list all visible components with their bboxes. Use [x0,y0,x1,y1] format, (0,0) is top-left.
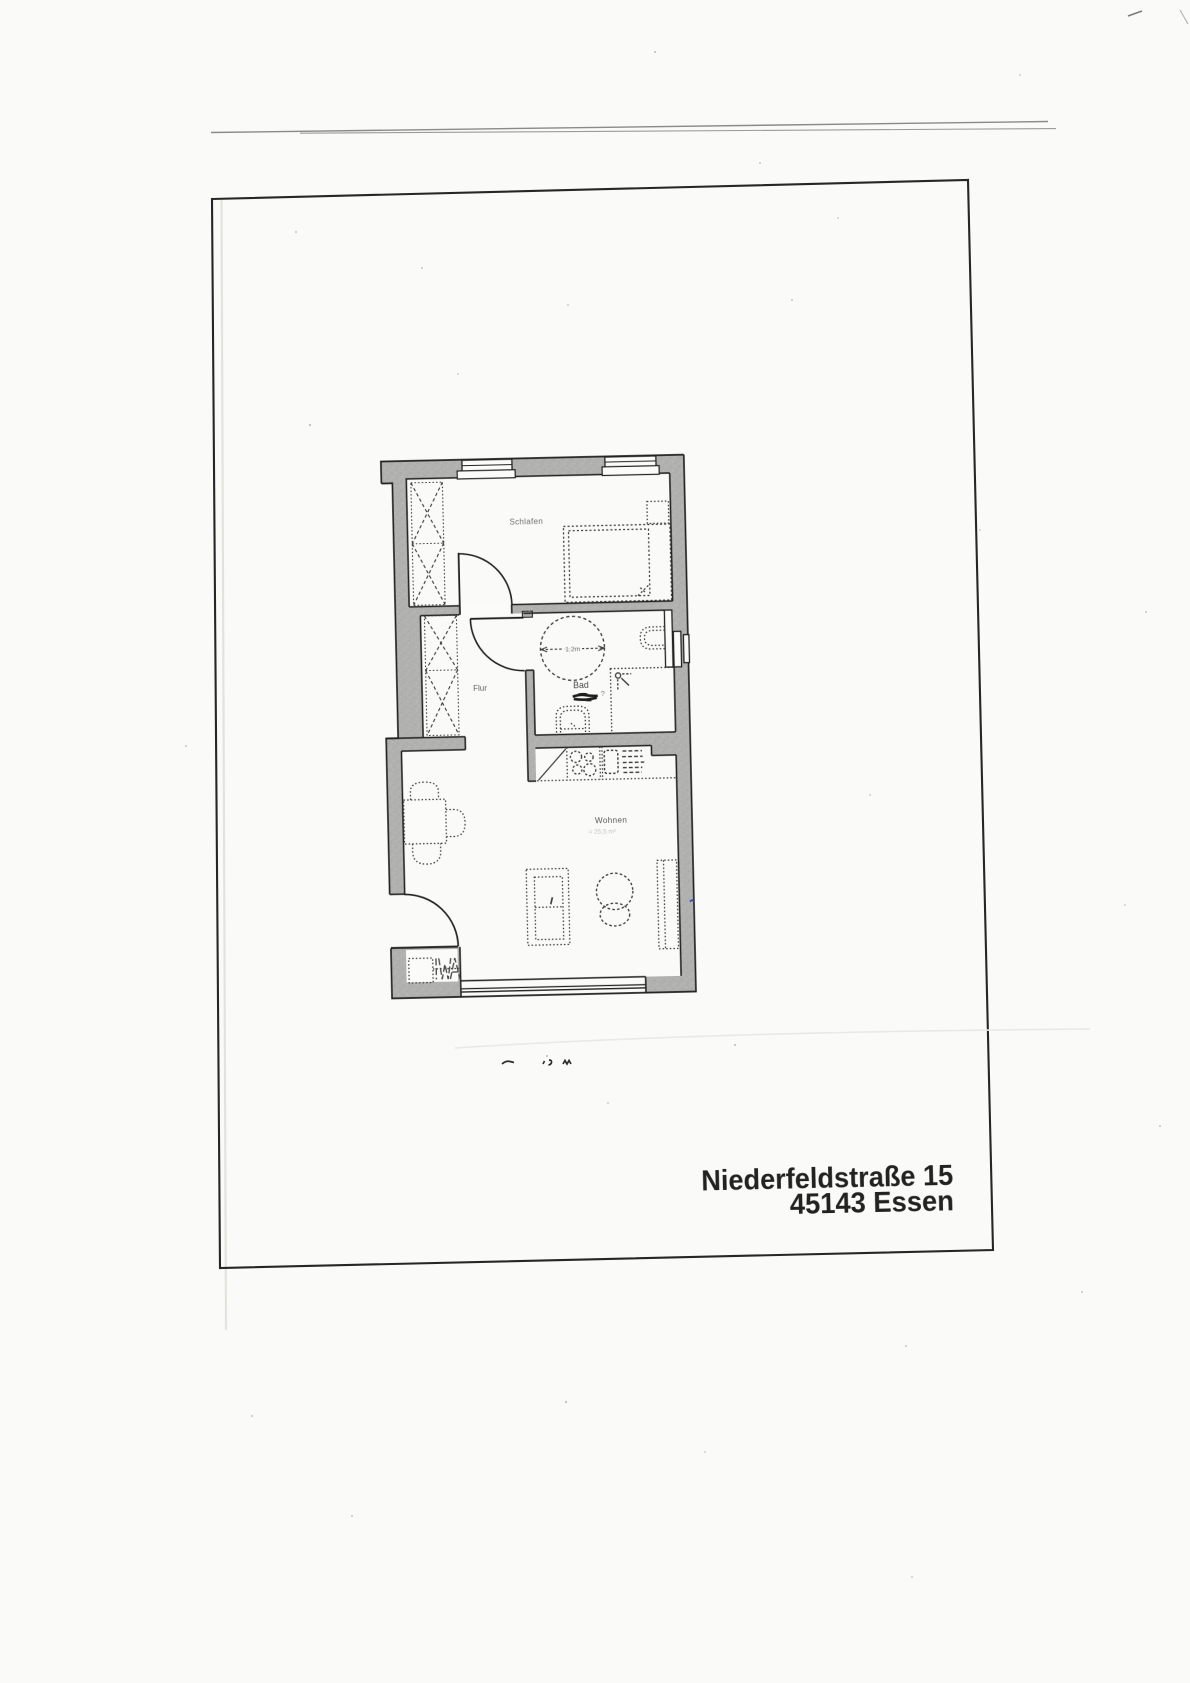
svg-text:45143 Essen: 45143 Essen [789,1185,954,1221]
svg-text:Schlafen: Schlafen [509,517,543,527]
svg-text:≈ 25,5 m²: ≈ 25,5 m² [589,828,617,836]
svg-text:Bad: Bad [573,680,589,690]
svg-text:Flur: Flur [473,684,487,693]
svg-text:Wohnen: Wohnen [595,816,627,826]
svg-text:1.2m: 1.2m [565,646,581,653]
svg-text:?: ? [601,689,605,698]
